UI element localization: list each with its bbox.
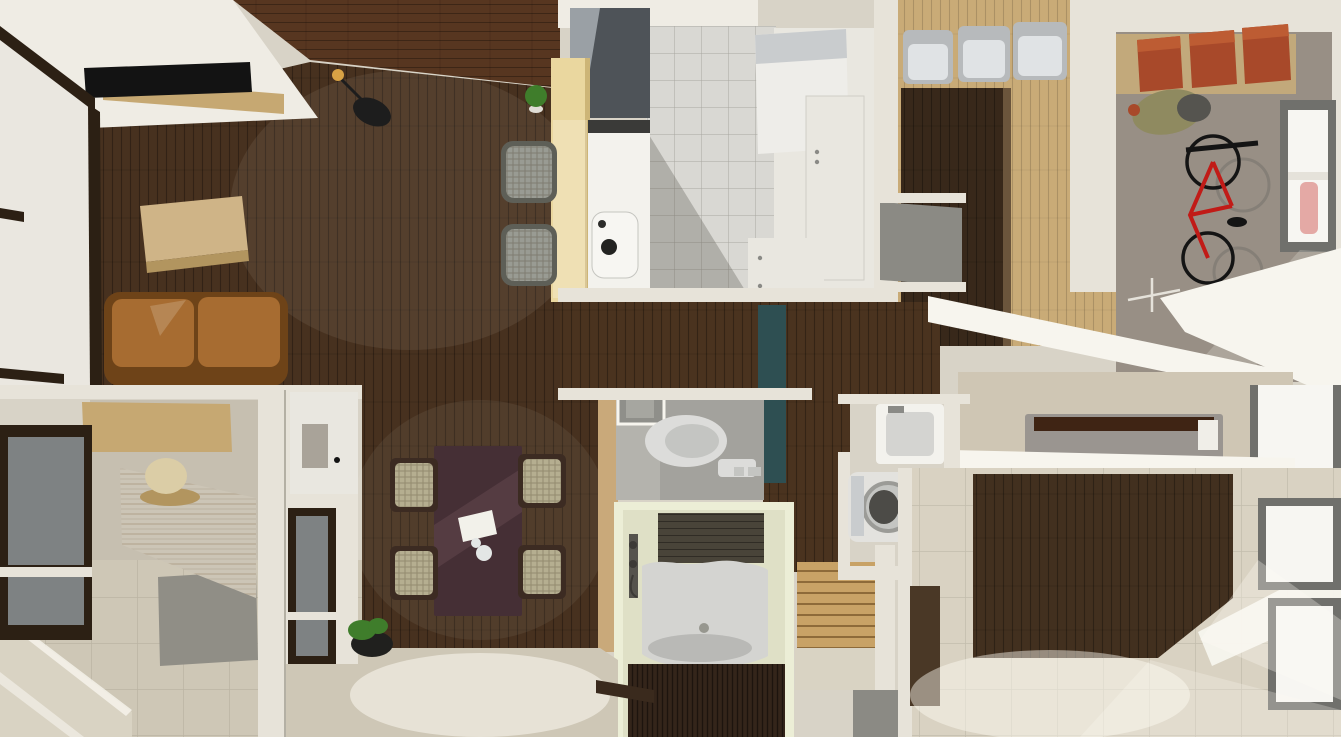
bed-pillow xyxy=(1198,420,1218,450)
shower-valve xyxy=(629,560,637,568)
stair-landing xyxy=(795,648,875,690)
closet-pillar-wall xyxy=(1070,0,1118,292)
table-lamp xyxy=(145,458,187,494)
dining-plant-leaf-2 xyxy=(368,618,388,634)
toilet-seat xyxy=(665,424,719,458)
wall-cabinet-hook xyxy=(334,457,340,463)
bath-tile-lines xyxy=(658,513,764,563)
tv xyxy=(84,62,252,98)
dining-lower-glow xyxy=(350,653,610,737)
hallway-planks xyxy=(560,302,940,398)
sink-faucet xyxy=(598,220,606,228)
storage-bins xyxy=(903,22,1067,84)
teapot xyxy=(476,545,492,561)
entry-window-divider xyxy=(0,567,92,577)
refrigerator-top xyxy=(755,29,847,64)
cabinet-handle xyxy=(815,150,819,154)
wall-cabinet-window xyxy=(302,424,328,468)
dining-chair-1-texture xyxy=(395,463,433,507)
kitchen-south-wall xyxy=(558,288,890,302)
hall-wall-beam xyxy=(558,388,812,400)
dining-chair-3-texture xyxy=(523,459,561,503)
storage-bin-2-front xyxy=(963,40,1005,78)
gear-bag-dark xyxy=(1177,94,1211,122)
teacup xyxy=(471,538,481,548)
wardrobe-edge xyxy=(1003,88,1011,346)
utility-sink-basin xyxy=(886,412,934,456)
washer-drum xyxy=(869,490,899,524)
shoji-frame-side xyxy=(88,104,102,388)
apartment-render xyxy=(0,0,1341,737)
toilet-supplies2 xyxy=(748,467,761,476)
interior-window-bar xyxy=(288,612,336,620)
dining-chair-4-texture xyxy=(523,550,561,594)
bedroom-floor-glow xyxy=(910,650,1190,737)
base-cabinet-handle xyxy=(758,256,762,260)
shoe-counter-top xyxy=(82,402,232,452)
bathtub-drain xyxy=(699,623,709,633)
cooktop xyxy=(588,120,650,133)
toilet-supplies xyxy=(734,467,744,476)
entry-window-glass-lower xyxy=(8,575,84,625)
bicycle-seat xyxy=(1227,217,1247,227)
sink-bowl xyxy=(601,239,617,255)
washer-control-panel xyxy=(851,476,864,536)
storage-bin-3-front xyxy=(1018,36,1062,76)
sofa-cushion-right xyxy=(198,297,280,367)
shower-head xyxy=(629,541,637,549)
storage-bin-1-front xyxy=(908,44,948,80)
planter-bed-top xyxy=(1034,417,1214,431)
interior-window-pane-2 xyxy=(296,620,328,656)
entry-floor-east xyxy=(286,664,362,737)
entry-hall-wall xyxy=(258,390,286,737)
stairwell-void xyxy=(880,202,962,286)
bag-red-accent xyxy=(1128,104,1140,116)
counter-glow xyxy=(553,120,587,298)
cabinet-handle2 xyxy=(815,160,819,164)
interior-window-pane-1 xyxy=(296,516,328,612)
floorplan-canvas xyxy=(0,0,1341,737)
bathtub-shadow xyxy=(648,634,752,662)
guitar-head xyxy=(332,69,344,81)
dining-chair-2-texture xyxy=(395,551,433,595)
bar-stool-1-texture xyxy=(506,146,552,198)
stairwell-wall-top xyxy=(876,193,966,203)
vent-window-inner xyxy=(626,399,654,418)
bar-stool-2-texture xyxy=(506,229,552,281)
window-bike-reflection xyxy=(1300,182,1318,234)
bedroom-window-1-glass xyxy=(1266,506,1333,582)
garage-window-divider xyxy=(1288,172,1328,180)
utility-sink-faucet xyxy=(888,406,904,413)
base-cabinet-handle2 xyxy=(758,284,762,288)
kitchen-plant xyxy=(525,85,547,107)
garage-north-wall xyxy=(1116,0,1341,32)
entry-window-glass xyxy=(8,437,84,565)
